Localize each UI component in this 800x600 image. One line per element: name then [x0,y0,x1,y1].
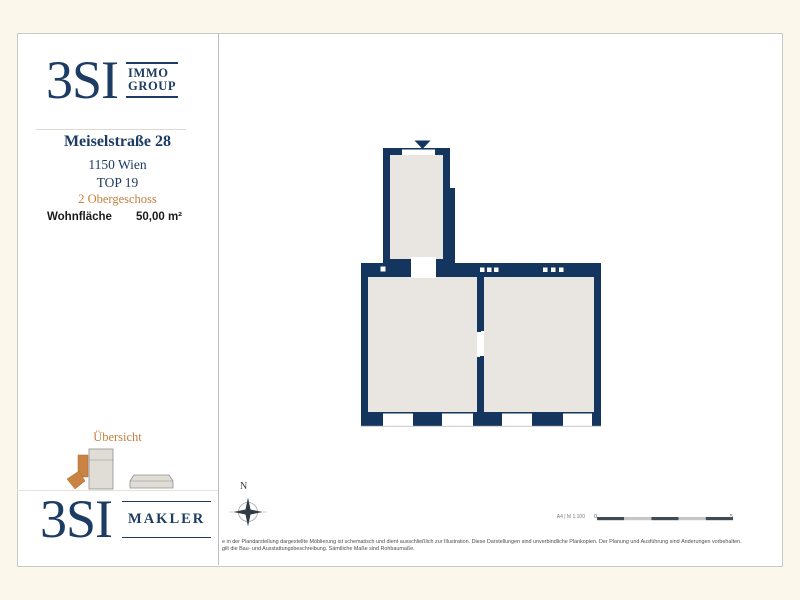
entrance-arrow-icon [415,141,431,150]
floor-plan-page: 3SI IMMO GROUP Meiselstraße 28 1150 Wien… [0,0,800,600]
scale-bar [597,517,733,520]
window-outer-line [361,426,601,427]
scale-start-label: 0 [594,514,597,520]
floor-plan [0,0,800,600]
disclaimer-line-1: e in der Plandarstellung dargestellte Mö… [222,539,780,546]
disclaimer-text: e in der Plandarstellung dargestellte Mö… [222,539,780,553]
compass-icon [229,498,267,527]
north-label: N [240,481,247,492]
disclaimer-line-2: gilt die Bau- und Ausstattungsbeschreibu… [222,546,780,553]
scale-format-label: A4 | M 1:100 [531,514,585,520]
scale-end-label: 5 [730,514,733,520]
